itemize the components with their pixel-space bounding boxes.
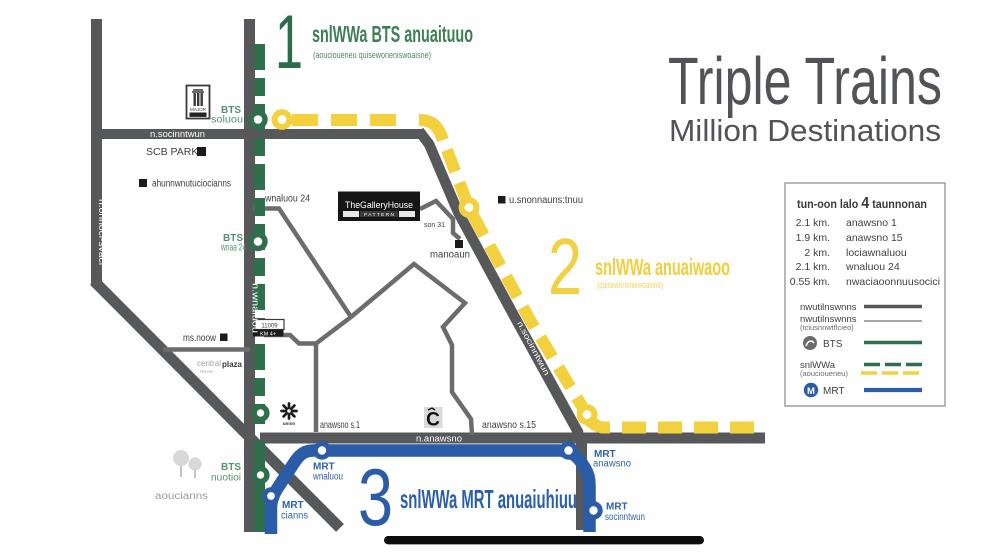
- svg-text:soluou: soluou: [211, 115, 243, 126]
- svg-text:BTS: BTS: [221, 462, 241, 473]
- svg-text:2 km.: 2 km.: [804, 247, 830, 259]
- svg-text:ladprao: ladprao: [200, 369, 214, 374]
- svg-text:11009: 11009: [261, 324, 278, 330]
- svg-text:snlWWa anuaiwaoo: snlWWa anuaiwaoo: [595, 254, 730, 280]
- svg-text:n.anawsno: n.anawsno: [416, 434, 462, 444]
- svg-text:n.onnoci-svaci: n.onnoci-svaci: [97, 199, 107, 265]
- svg-text:3: 3: [358, 453, 393, 543]
- svg-text:u.snonnauns:tnuu: u.snonnauns:tnuu: [509, 195, 583, 206]
- svg-text:1.9 km.: 1.9 km.: [796, 232, 830, 244]
- svg-text:anawsno s.15: anawsno s.15: [482, 420, 536, 431]
- svg-text:nuotioi: nuotioi: [211, 473, 241, 484]
- svg-text:(aoucioueneu): (aoucioueneu): [800, 369, 848, 378]
- svg-text:(tciusnnwtflcieo): (tciusnnwtflcieo): [800, 323, 854, 332]
- svg-text:(aoucioueneu quisewoneniswoais: (aoucioueneu quisewoneniswoaisne): [313, 50, 431, 61]
- svg-text:n.socinntwun: n.socinntwun: [150, 129, 205, 139]
- svg-text:2: 2: [548, 222, 582, 311]
- svg-text:wnaluou: wnaluou: [312, 472, 343, 483]
- svg-text:C: C: [426, 410, 440, 431]
- svg-text:nwutilnswnns: nwutilnswnns: [800, 302, 857, 313]
- svg-text:plaza: plaza: [222, 360, 243, 369]
- svg-text:snlWWa BTS anuaituuo: snlWWa BTS anuaituuo: [312, 21, 473, 47]
- svg-text:central: central: [197, 359, 221, 368]
- svg-text:cianns: cianns: [281, 511, 308, 522]
- svg-text:MRT: MRT: [823, 386, 844, 397]
- svg-text:1: 1: [275, 0, 303, 85]
- svg-text:nwaciaoonnuusocici: nwaciaoonnuusocici: [846, 276, 940, 288]
- svg-text:KM 4+: KM 4+: [260, 332, 276, 338]
- svg-text:lociawnaluou: lociawnaluou: [846, 247, 907, 259]
- svg-text:2.1 km.: 2.1 km.: [796, 261, 830, 273]
- svg-text:M: M: [807, 386, 815, 397]
- svg-text:TheGalleryHouse: TheGalleryHouse: [345, 200, 413, 210]
- svg-text:ahunnwnutuciocianns: ahunnwnutuciocianns: [152, 179, 231, 190]
- svg-text:0.55 km.: 0.55 km.: [790, 276, 830, 288]
- svg-text:(quisewoneniswoaisne): (quisewoneniswoaisne): [597, 280, 663, 290]
- svg-text:Million Destinations: Million Destinations: [669, 113, 941, 148]
- svg-text:anawsno 1: anawsno 1: [846, 217, 897, 229]
- svg-text:anawsno: anawsno: [593, 459, 631, 470]
- svg-text:MRT: MRT: [606, 502, 628, 513]
- svg-text:wnaluou 24: wnaluou 24: [845, 261, 900, 273]
- svg-text:son 31: son 31: [424, 222, 445, 229]
- svg-text:BTS: BTS: [823, 339, 843, 350]
- svg-text:wnaa 24: wnaa 24: [220, 243, 246, 254]
- svg-text:anawsno s.1: anawsno s.1: [320, 420, 360, 431]
- svg-text:manoaun: manoaun: [430, 250, 470, 261]
- svg-text:2.1 km.: 2.1 km.: [796, 217, 830, 229]
- svg-text:tun-oon lalo 4 taunnonan: tun-oon lalo 4 taunnonan: [797, 195, 927, 212]
- svg-text:n.wnaluou: n.wnaluou: [251, 283, 261, 333]
- svg-text:Triple Trains: Triple Trains: [668, 44, 942, 119]
- svg-text:snlWWa MRT anuaiuhiuu: snlWWa MRT anuaiuhiuu: [400, 484, 577, 514]
- svg-text:aoucianns: aoucianns: [155, 491, 208, 502]
- svg-text:MAJOR: MAJOR: [190, 107, 207, 112]
- svg-text:SCB PARK: SCB PARK: [146, 146, 198, 158]
- svg-text:MRT: MRT: [282, 500, 304, 511]
- svg-text:anawsno 15: anawsno 15: [846, 232, 903, 244]
- svg-text:ms.noow: ms.noow: [183, 333, 217, 344]
- svg-text:socinntwun: socinntwun: [605, 512, 645, 523]
- svg-text:wnaluou 24: wnaluou 24: [264, 194, 310, 205]
- svg-text:P A T T E R N: P A T T E R N: [364, 212, 394, 217]
- svg-text:union: union: [283, 421, 296, 426]
